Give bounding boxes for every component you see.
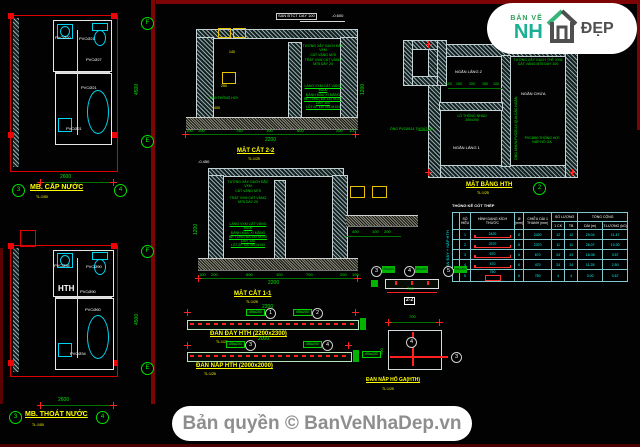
detail-scale: TL:1/25 — [204, 372, 216, 376]
level-mark: -0.600 — [332, 14, 343, 19]
col-total-group: TỔNG CỘNG — [578, 213, 628, 222]
dim-value: 100 — [199, 273, 206, 278]
wall-note-line: CÁT VÀNG M75 — [235, 189, 261, 193]
mc22-wall-mid — [288, 42, 302, 119]
drawing-title: MB. CẤP NƯỚC — [30, 184, 83, 191]
cell-tw: 10.30 — [603, 240, 628, 250]
beam-end-section — [371, 280, 378, 287]
cell-no: 1 — [460, 230, 471, 240]
rebar-mark — [427, 281, 429, 285]
cell-tl: 3.00 — [578, 270, 603, 282]
drawing-scale: TL:1/50 — [32, 423, 44, 427]
cell-len: 750 — [524, 270, 552, 282]
table-row: 1 2420 8 2420 12 12 29.04 11.47 — [453, 230, 628, 240]
hoga-wall — [403, 40, 413, 86]
col-no: SỐ HIỆU — [460, 213, 471, 230]
lining-note-line: BÊ TÔNG ĐÁ 1x2 M200 DÀY 100 — [304, 97, 342, 105]
rebar-callout-label: Ø6a200 — [382, 266, 395, 273]
cell-tl: 29.04 — [578, 230, 603, 240]
leader-line — [300, 21, 345, 22]
section-mark-bubble: 2 — [533, 182, 546, 195]
dim-value: 100 — [493, 82, 499, 86]
cell-tl: 26.07 — [578, 240, 603, 250]
mc22-wall-left — [196, 37, 214, 119]
dim-value: 800 — [297, 129, 304, 134]
grid-bubble-e: E — [141, 362, 154, 375]
cell-dia: 6 — [515, 260, 524, 270]
hoga-wall — [437, 40, 447, 86]
lining-note: LÁNG VXM CÁT VÀNG M100 ĐÁNH MÀU XI MĂNG … — [302, 84, 344, 110]
dim-value: 750 — [236, 129, 243, 134]
mc11-top-slab — [208, 168, 344, 177]
shape-length: 2370 — [489, 242, 497, 246]
dimension-line — [186, 134, 356, 135]
pipe-label: PVCØ27 — [86, 58, 102, 63]
rebar-shape-icon — [475, 237, 510, 238]
grid-bubble-3: 3 — [9, 411, 22, 424]
dimension-line-red — [387, 292, 437, 293]
section-title: MẶT CẮT 1-1 — [234, 291, 271, 297]
rebar-callout-bubble: 3 — [371, 266, 382, 277]
crosshair-marker — [569, 169, 576, 176]
cell-shape: 670 — [471, 250, 515, 260]
slab-note: SÀN BTCT DÀY 100 — [276, 13, 317, 20]
hole-note-line: 200x200 — [465, 118, 478, 122]
cell-no: 2 — [460, 240, 471, 250]
bar-end-section — [353, 350, 359, 362]
manhole-lid — [233, 28, 246, 38]
dim-total: 2200 — [265, 138, 276, 144]
cell-dia: 6 — [515, 250, 524, 260]
frame-line-left — [0, 248, 3, 404]
cell-len: 2370 — [524, 240, 552, 250]
cell-shape: 2420 — [471, 230, 515, 240]
hth-wall-right — [565, 44, 578, 178]
dimension-line — [388, 322, 440, 323]
steel-schedule-table: SỐ HIỆU HÌNH DẠNG KÍCH THƯỚC Ø (mm) CHIỀ… — [452, 212, 628, 282]
dimension: 2600 — [58, 398, 69, 404]
rebar-mark — [411, 281, 413, 285]
cell-dia: 8 — [515, 230, 524, 240]
table-row: 4 470 6 470 24 24 11.28 2.50 — [453, 260, 628, 270]
cell-qa: 24 — [565, 250, 578, 260]
shape-length: 670 — [490, 252, 496, 256]
vent-note: PVCØ60 THÔNG HƠI NẮP HỐ GA — [522, 136, 562, 145]
column-marker — [8, 243, 14, 249]
lining-note: LÁNG VXM CÁT VÀNG M100 ĐÁNH MÀU XI MĂNG … — [226, 222, 270, 248]
plan-scale: TL:1/25 — [477, 191, 489, 195]
rebar-shape-icon — [475, 257, 510, 258]
thoatnuoc-wall-hatch — [13, 248, 19, 372]
dim-value: 400 — [352, 230, 359, 235]
section-label: 2-2 — [404, 297, 415, 305]
shower-tub — [87, 90, 109, 134]
cell-qa: 12 — [565, 230, 578, 240]
plaster-note: TRÁT VXM CÁT VÀNG M75 DÀY 20 — [302, 58, 344, 67]
cell-dia: 6 — [515, 270, 524, 282]
section-scale: TL:1/25 — [246, 300, 258, 304]
pipe-label: PVCØ60 — [85, 308, 101, 313]
rebar-callout-bubble: 3 — [245, 340, 256, 351]
pipe-label: PVCØ34 — [70, 352, 86, 357]
dim-total: 2200 — [268, 281, 279, 287]
col-shape: HÌNH DẠNG KÍCH THƯỚC — [471, 213, 515, 230]
house-icon — [545, 7, 579, 50]
mc11-wall-mid — [274, 180, 286, 260]
pipe-line — [77, 258, 78, 358]
dim-value: 700 — [306, 273, 313, 278]
dim-value: 150 — [482, 82, 488, 86]
table-row: 3 670 6 670 24 24 16.08 3.57 — [453, 250, 628, 260]
pipe-label: PVCØ90 — [80, 290, 96, 295]
dim-value: 100 — [186, 129, 193, 134]
column-marker — [111, 243, 117, 249]
rebar-callout-bubble: 5 — [443, 266, 454, 277]
inner-dim: 400 — [214, 106, 220, 110]
rebar-callout-bubble: 3 — [451, 352, 462, 363]
vertical-dimension: 1200 — [194, 224, 200, 235]
col-member — [453, 213, 460, 230]
column-marker — [8, 360, 14, 366]
hth-wall-note: TƯỜNG XÂY GẠCH THẺ VXM CÁT VÀNG M75 DÀY … — [512, 58, 564, 67]
cell-no: 3 — [460, 250, 471, 260]
rebar-callout-bubble: 4 — [322, 340, 333, 351]
dimension: 2600 — [60, 175, 71, 181]
room-label: NGĂN LẮNG 2 — [455, 70, 482, 75]
logo-main-text: NH — [514, 22, 543, 42]
col-length: CHIỀU DÀI 1 THANH (mm) — [524, 213, 552, 230]
plaster-note-line: M75 DÀY 20 — [313, 62, 333, 66]
plan-title: MẶT BẰNG HTH — [466, 182, 512, 188]
capnuoc-wall-hatch — [13, 18, 19, 167]
mc11-wall-left — [208, 175, 224, 260]
dim-value: 100 — [276, 273, 283, 278]
dimension: 730 — [407, 287, 414, 292]
banvenhadep-logo[interactable]: BẢN VẼ NH ĐẸP — [487, 3, 637, 54]
cell-q1: 4 — [552, 270, 565, 282]
dim-value: 100 — [446, 82, 452, 86]
rebar-callout-label: Ø8a200 — [226, 341, 245, 348]
crosshair-marker — [184, 309, 191, 316]
dimension-line — [448, 88, 502, 89]
plaster-note-line: M75 DÀY 20 — [238, 200, 258, 204]
grid-bubble-4: 4 — [96, 411, 109, 424]
drawing-title: MB. THOÁT NƯỚC — [25, 411, 88, 418]
dim-value: 150 — [456, 82, 462, 86]
cell-q1: 12 — [552, 230, 565, 240]
crosshair-marker — [352, 309, 359, 316]
rebar-callout-label: Ø8a200 — [246, 309, 265, 316]
pipe-label: PVCØ21 — [66, 127, 82, 132]
cad-drawing-canvas: PVCØ20 PVCØ21 PVCØ27 PVCØ21 PVCØ21 F E 4… — [0, 0, 640, 447]
cell-len: 2420 — [524, 230, 552, 240]
vertical-dimension: 1200 — [361, 84, 367, 95]
cell-len: 470 — [524, 260, 552, 270]
mc11-foundation — [198, 258, 358, 271]
vertical-dimension: 4500 — [135, 314, 141, 325]
section-scale: TL:1/25 — [248, 157, 260, 161]
vertical-dimension: 700 — [380, 348, 385, 355]
inner-dim: 140 — [229, 50, 235, 54]
lining-note-line: BÊ TÔNG ĐÁ 1x2 M200 DÀY 100 — [229, 235, 267, 243]
cell-tw: 0.67 — [603, 270, 628, 282]
lining-note-line: LÓT BT ĐÁ 4x6 M100 — [231, 243, 265, 247]
crosshair-marker — [425, 41, 432, 48]
room-label: NGĂN LẮNG 1 — [453, 146, 480, 151]
lining-note-line: LÁNG VXM CÁT VÀNG M100 — [305, 84, 342, 92]
grid-bubble-f: F — [141, 17, 154, 30]
pipe-through-note: ỐNG NHỰA PVCØ114 QUA CÁC NGĂN — [514, 97, 518, 160]
vent-note: Ø60 THÔNG HƠI — [206, 96, 242, 100]
cell-tl: 16.08 — [578, 250, 603, 260]
hoga-slab-outline — [388, 330, 442, 370]
rebar-callout-label: Ø6a200 — [454, 266, 467, 273]
pipe-label: PVCØ21 — [81, 86, 97, 91]
wall-note-line: TƯỜNG XÂY GẠCH ĐẶC VXM — [228, 180, 269, 188]
vertical-dimension: 4500 — [135, 84, 141, 95]
dim-value: 800 — [246, 273, 253, 278]
leader-line — [418, 130, 430, 131]
inner-dim: 250 — [221, 84, 227, 88]
rebar-callout-bubble: 4 — [404, 266, 415, 277]
lining-note-line: LÓT BT ĐÁ 4x6 M100 — [306, 105, 340, 109]
rebar-mark — [395, 281, 397, 285]
logo-suffix-text: ĐẸP — [581, 20, 614, 38]
cell-len: 670 — [524, 250, 552, 260]
cell-tw: 11.47 — [603, 230, 628, 240]
crosshair-marker — [385, 319, 392, 326]
column-marker — [8, 13, 14, 19]
wall-note-line: TƯỜNG XÂY GẠCH ĐẶC VXM — [303, 44, 344, 52]
col-dia: Ø (mm) — [515, 213, 524, 230]
rebar-dashes — [190, 355, 347, 357]
crosshair-marker — [425, 169, 432, 176]
wall-note: TƯỜNG XÂY GẠCH ĐẶC VXM CÁT VÀNG M75 — [302, 44, 344, 57]
pipe-elbow — [372, 186, 387, 198]
dim-value: 200 — [211, 273, 218, 278]
pipe-label: PVCØ34 — [54, 264, 70, 269]
rebar-shape-icon — [475, 247, 510, 248]
slab-bar-body — [187, 320, 359, 330]
detail-title: ĐAN ĐÁY HTH (2200x2300) — [210, 331, 287, 337]
dim-value: 100 — [352, 273, 359, 278]
grid-bubble-4: 4 — [114, 184, 127, 197]
frame-line-vertical — [151, 0, 155, 404]
cell-qa: 11 — [565, 240, 578, 250]
col-total-len: DÀI (m) — [578, 222, 603, 230]
rebar-callout-bubble: 2 — [312, 308, 323, 319]
wall-note: TƯỜNG XÂY GẠCH ĐẶC VXM CÁT VÀNG M75 — [226, 180, 270, 193]
cell-qa: 4 — [565, 270, 578, 282]
dim-value: 200 — [384, 230, 391, 235]
crosshair-marker — [110, 402, 117, 409]
mc11-gully-foundation — [346, 215, 418, 227]
cell-tl: 11.28 — [578, 260, 603, 270]
detail-title: ĐAN NẮP HTH (2000x2000) — [196, 363, 273, 369]
crosshair-marker — [345, 342, 352, 349]
table-member-label: ĐAN ĐÁY + NẮP HTH — [446, 230, 451, 270]
shower-tub — [87, 315, 109, 359]
crosshair-marker — [184, 342, 191, 349]
pipe-line — [55, 297, 112, 298]
cell-shape: 750 — [471, 270, 515, 282]
logo-text-left: BẢN VẼ NH — [510, 15, 542, 42]
hole-note: LỖ THÔNG NHAU 200x200 — [452, 114, 492, 123]
cell-q1: 11 — [552, 240, 565, 250]
col-total-weight: T.LƯỢNG (kG) — [603, 222, 628, 230]
grid-bubble-3: 3 — [12, 184, 25, 197]
rebar-line-horizontal — [390, 356, 448, 358]
dim-value: 200 — [469, 82, 475, 86]
dimension-line — [40, 182, 115, 183]
rebar-callout-label: Ø8a200 — [293, 309, 312, 316]
dim-value: 200 — [336, 129, 343, 134]
dimension-line — [346, 236, 401, 237]
column-marker — [8, 132, 14, 138]
cell-tw: 3.57 — [603, 250, 628, 260]
cell-dia: 8 — [515, 240, 524, 250]
shape-length: 750 — [490, 270, 496, 274]
grid-bubble-e: E — [141, 135, 154, 148]
cell-tw: 2.50 — [603, 260, 628, 270]
dimension: 700 — [409, 315, 416, 320]
col-qty-1ck: 1 CK — [552, 222, 565, 230]
hth-wall-inner-v — [501, 55, 511, 167]
level-mark: -0.450 — [198, 160, 209, 165]
cell-shape: 470 — [471, 260, 515, 270]
column-marker — [111, 13, 117, 19]
pipe-elbow — [350, 186, 365, 198]
pipe-line — [77, 30, 78, 135]
dim-value: 200 — [198, 129, 205, 134]
dim-value: 100 — [349, 129, 356, 134]
grid-bubble-f: F — [141, 245, 154, 258]
dim-value: 100 — [372, 230, 379, 235]
dim-value: 100 — [266, 129, 273, 134]
dimension-line — [40, 405, 115, 406]
shape-length: 2420 — [489, 232, 497, 236]
dimension: 2000 — [258, 337, 269, 343]
cell-shape: 2370 — [471, 240, 515, 250]
thoatnuoc-riser-box — [20, 230, 36, 247]
rebar-callout-bubble: 1 — [265, 308, 276, 319]
dim-value: 200 — [340, 273, 347, 278]
detail-scale: TL:1/25 — [382, 387, 394, 391]
rebar-callout-label: Ø8a200 — [303, 341, 322, 348]
wall-note-line: CÁT VÀNG M75 — [310, 53, 336, 57]
rebar-shape-icon — [475, 267, 510, 268]
detail-title: ĐAN NẮP HỐ GA(HTH) — [366, 378, 420, 384]
dimension-line — [198, 278, 358, 279]
col-qty-all: TB — [565, 222, 578, 230]
pipe-label: PVCØ20 — [55, 36, 71, 41]
pipe-elbow — [222, 72, 236, 84]
table-row: 2 2370 8 2370 11 11 26.07 10.30 — [453, 240, 628, 250]
vent-note-line: NẮP HỐ GA — [532, 140, 551, 144]
col-qty-group: SỐ LƯỢNG — [552, 213, 578, 222]
plaster-note: TRÁT VXM CÁT VÀNG M75 DÀY 20 — [226, 196, 270, 205]
pipe-label: PVCØ90 — [86, 265, 102, 270]
pipe-label: PVCØ21 — [79, 37, 95, 42]
copyright-text: Bản quyền © BanVeNhaDep.vn — [182, 413, 461, 435]
room-label: NGĂN CHỨA — [521, 92, 546, 97]
copyright-pill: Bản quyền © BanVeNhaDep.vn — [172, 406, 472, 441]
rebar-callout-label: Ø6a200 — [415, 266, 428, 273]
cell-q1: 24 — [552, 250, 565, 260]
bar-end-section — [360, 318, 366, 330]
pipe-line — [55, 72, 110, 73]
cell-q1: 24 — [552, 260, 565, 270]
slab-bar-body — [187, 352, 352, 362]
crosshair-marker — [436, 319, 443, 326]
section-title: MẶT CẮT 2-2 — [237, 148, 274, 154]
toilet-bowl — [94, 30, 106, 46]
crosshair-marker — [37, 402, 44, 409]
rebar-callout-bubble: 4 — [406, 337, 417, 348]
shape-length: 470 — [490, 262, 496, 266]
rebar-dashes — [190, 323, 354, 325]
hth-wall-note-line: CÁT VÀNG M75 DÀY 100 — [518, 62, 559, 66]
septic-tank-label: HTH — [58, 284, 74, 293]
manhole-lid — [218, 28, 231, 38]
cell-qa: 24 — [565, 260, 578, 270]
table-title: THỐNG KÊ CỐT THÉP — [452, 204, 494, 209]
drawing-scale: TL:1/50 — [36, 195, 48, 199]
rebar-shape-icon — [485, 275, 501, 281]
hth-wall-inner-h — [439, 102, 503, 111]
lining-note-line: LÁNG VXM CÁT VÀNG M100 — [230, 222, 267, 230]
table-row: 5 750 6 750 4 4 3.00 0.67 — [453, 270, 628, 282]
